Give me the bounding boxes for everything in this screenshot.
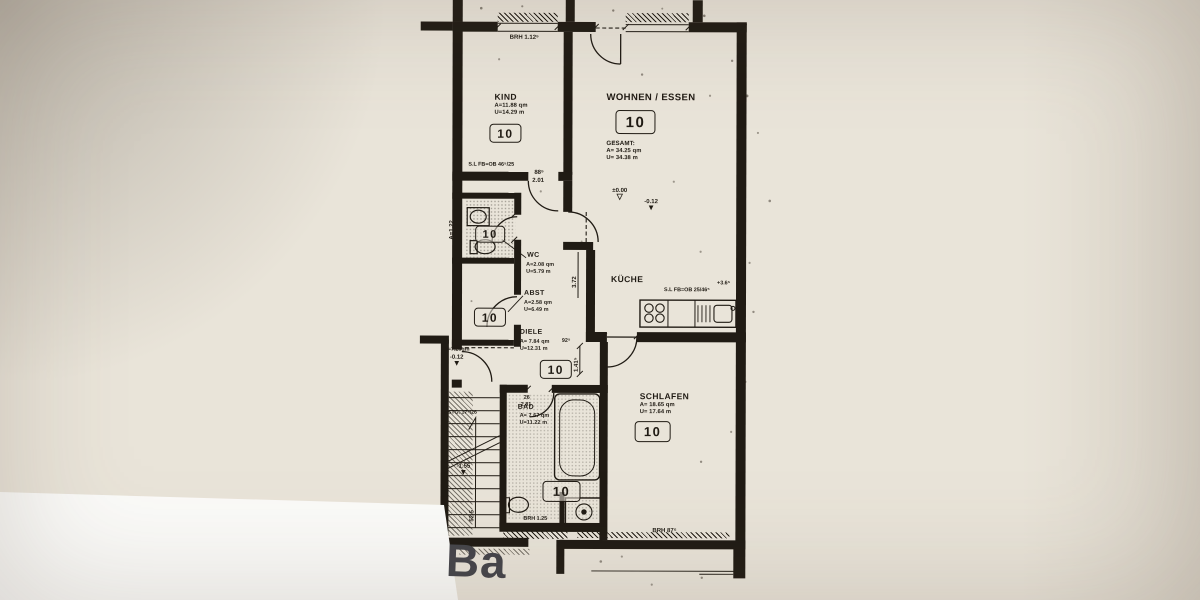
annotation-dim-26: 26 xyxy=(524,395,530,401)
room-perimeter-bad: U=11.22 m xyxy=(520,420,547,426)
washing-machine-center xyxy=(582,510,586,514)
room-name-kueche: KÜCHE xyxy=(611,274,643,284)
level-marker-open-icon: ▽ xyxy=(617,193,623,201)
annotation-brh-875: BRH 87⁵ xyxy=(652,528,676,534)
room-area-schlafen: A= 18.65 qm xyxy=(640,402,675,408)
room-area-wc: A=2.08 qm xyxy=(526,262,554,268)
level-marker-stair: -1.55 ▼ xyxy=(457,464,471,477)
annotation-plus-365: +3.6⁵ xyxy=(717,280,730,286)
room-name-wc: WC xyxy=(527,252,539,259)
annotation-dim-1415: 1.41⁵ xyxy=(574,357,580,372)
room-name-schlafen: SCHLAFEN xyxy=(640,391,690,401)
annotation-brh-125: BRH 1.25 xyxy=(523,516,547,522)
unit-number-wc: 10 xyxy=(475,226,505,243)
level-marker-filled-icon: ▼ xyxy=(459,469,467,477)
unit-number-wohnen: 10 xyxy=(615,110,655,134)
stove-burner-icon xyxy=(656,304,664,312)
unit-number-bad: 10 xyxy=(542,481,580,502)
level-marker-minus012: -0.12 ▼ xyxy=(644,199,658,212)
gesamt-title: GESAMT: xyxy=(606,140,635,147)
leader-line-wc xyxy=(502,240,526,258)
annotation-sl-fb-kueche: S.L FB=OB 25/46⁵ xyxy=(664,287,710,293)
door-arc-entry xyxy=(462,352,492,382)
unit-number-diele: 10 xyxy=(540,360,572,379)
gesamt-area: A= 34.25 qm xyxy=(606,148,641,154)
room-perimeter-wc: U=5.79 m xyxy=(526,269,551,275)
corner-page-label: Ba xyxy=(445,533,508,589)
dimension-lines xyxy=(578,252,580,374)
door-arc-schlafen xyxy=(607,337,637,367)
unit-number-schlafen: 10 xyxy=(635,421,671,442)
annotation-dim-525: 52.5 xyxy=(469,510,475,522)
annotation-dim-281: 2.81 xyxy=(521,402,532,408)
sink-drainer-lines xyxy=(698,305,710,322)
gesamt-perimeter: U= 34.38 m xyxy=(606,155,637,161)
room-name-wohnen: WOHNEN / ESSEN xyxy=(607,92,696,103)
unit-number-kind: 10 xyxy=(489,124,521,143)
room-area-kind: A=11.88 qm xyxy=(495,103,528,109)
room-area-abst: A=2.58 qm xyxy=(524,300,552,306)
unit-number-abst: 10 xyxy=(474,308,506,327)
stair-break-line xyxy=(446,436,500,470)
room-area-diele: A= 7.84 qm xyxy=(520,339,550,345)
level-marker-zero: ±0.00 ▽ xyxy=(612,188,627,201)
level-marker-filled-icon: ▼ xyxy=(647,204,655,212)
annotation-dim-885: 88⁵ xyxy=(534,170,544,176)
stove-burner-icon xyxy=(656,314,664,322)
room-perimeter-kind: U=14.29 m xyxy=(494,110,524,116)
scanned-floor-plan: KIND A=11.88 qm U=14.29 m 10 WOHNEN / ES… xyxy=(0,0,1200,600)
stove-burner-icon xyxy=(645,314,653,322)
level-marker-landing: -0.12 ▼ xyxy=(450,355,464,368)
stove-burner-icon xyxy=(645,304,653,312)
room-name-abst: ABST xyxy=(524,290,545,297)
kitchen-counter-dividers xyxy=(668,300,695,327)
room-name-kind: KIND xyxy=(495,92,517,102)
bathtub-inner xyxy=(560,400,595,476)
door-arc-wohnen xyxy=(568,212,598,242)
annotation-landing-area: A=7.20qm xyxy=(444,347,470,353)
kitchen-counter xyxy=(640,300,736,327)
room-perimeter-diele: U=12.31 m xyxy=(520,346,548,352)
annotation-dim-372: 3.72 xyxy=(572,276,578,288)
annotation-stairs-note: 17 STG. 17⁹/26 xyxy=(441,410,477,416)
annotation-sl-fb-kind: S.L FB=OB 46⁵/25 xyxy=(468,162,514,168)
room-name-diele: DIELE xyxy=(520,329,543,336)
toilet-icon xyxy=(508,497,528,512)
annotation-dim-201: 2.01 xyxy=(532,178,544,184)
door-arc-balcony xyxy=(591,34,621,64)
annotation-dim-925: 92⁵ xyxy=(562,338,571,344)
annotation-dim-a122: A=1.22 xyxy=(449,220,455,240)
room-area-bad: A= 7.67 qm xyxy=(520,413,550,419)
washbasin-icon xyxy=(470,210,486,223)
leader-line-abst xyxy=(508,296,523,312)
sink-bowl-icon xyxy=(714,305,732,322)
annotation-brh-top: BRH 1.12⁵ xyxy=(510,35,539,41)
toilet-tank xyxy=(470,241,477,254)
room-perimeter-schlafen: U= 17.64 m xyxy=(640,409,671,415)
level-marker-filled-icon: ▼ xyxy=(453,360,461,368)
door-arc-kind xyxy=(528,181,558,211)
annotation-dim-52sup: 52⁵ xyxy=(500,390,509,396)
room-perimeter-abst: U=6.49 m xyxy=(524,307,549,313)
